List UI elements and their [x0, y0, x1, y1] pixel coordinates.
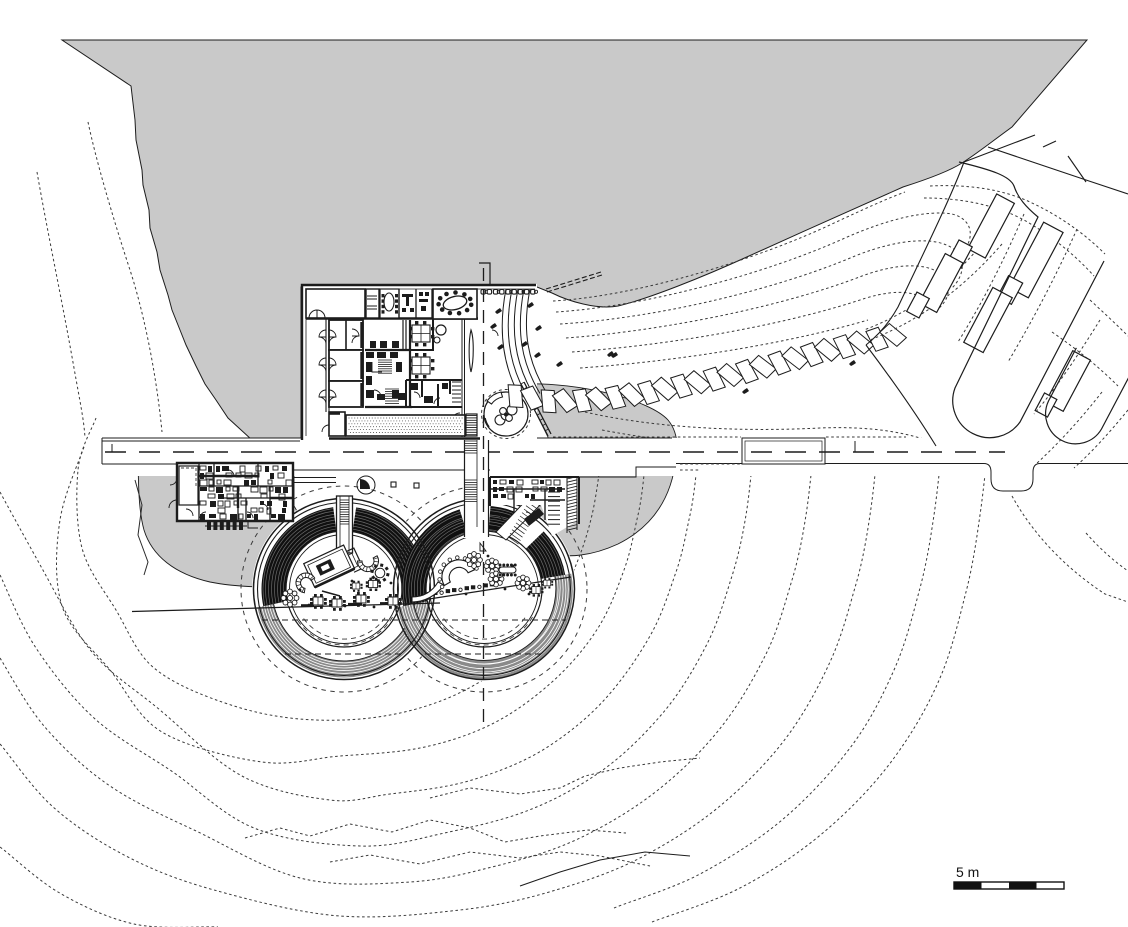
svg-text:5 m: 5 m [956, 864, 979, 880]
